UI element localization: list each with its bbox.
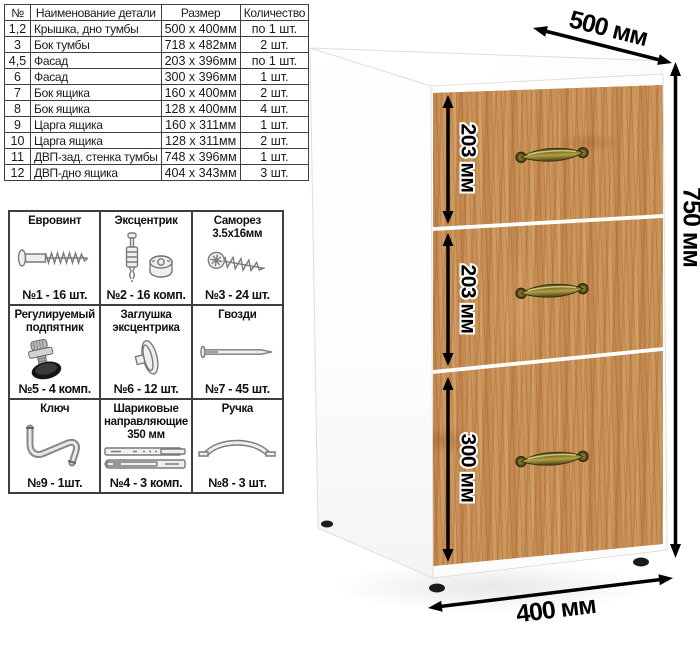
col-header-num: № (5, 5, 31, 21)
hardware-item-eccentric: Эксцентрик №2 - 16 комп. (100, 211, 191, 305)
cabinet-foot (633, 558, 649, 567)
cell: Фасад (31, 69, 162, 85)
cell: 10 (5, 133, 31, 149)
cell: 128 х 311мм (161, 133, 240, 149)
cell: 4 шт. (240, 101, 308, 117)
cell: 300 х 396мм (161, 69, 240, 85)
hardware-item-cap: Заглушка эксцентрика №6 - 12 шт. (100, 305, 191, 399)
hardware-title: Регулируемый подпятник (11, 309, 98, 335)
dimensions-overlay: 500 мм 750 мм 400 мм 203 мм (300, 0, 700, 648)
cell: по 1 шт. (240, 21, 308, 37)
table-row: 1,2 Крышка, дно тумбы 500 х 400мм по 1 ш… (5, 21, 309, 37)
dim-drawer3-arrow (443, 377, 454, 562)
cabinet-foot (429, 584, 445, 593)
cell: 4,5 (5, 53, 31, 69)
nail-icon (198, 322, 276, 382)
hardware-count: №9 - 1шт. (27, 476, 82, 490)
cell: 160 х 311мм (161, 117, 240, 133)
cell: Бок ящика (31, 101, 162, 117)
hardware-item-samorez: Саморез 3.5х16мм №3 - 24 шт. (192, 211, 283, 305)
dim-drawer2-arrow (443, 233, 454, 366)
table-row: 11 ДВП-зад. стенка тумбы 748 х 396мм 1 ш… (5, 149, 309, 165)
cell: 6 (5, 69, 31, 85)
cell: Крышка, дно тумбы (31, 21, 162, 37)
cell: 7 (5, 85, 31, 101)
dim-depth-label: 500 мм (566, 5, 650, 52)
col-header-size: Размер (161, 5, 240, 21)
table-row: 10 Царга ящика 128 х 311мм 2 шт. (5, 133, 309, 149)
hardware-count: №8 - 3 шт. (208, 476, 266, 490)
dim-drawer3-label: 300 мм (456, 434, 479, 503)
hardware-count: №6 - 12 шт. (113, 382, 178, 396)
cell: 2 шт. (240, 37, 308, 53)
hardware-title: Саморез 3.5х16мм (194, 215, 281, 241)
table-row: 8 Бок ящика 128 х 400мм 4 шт. (5, 101, 309, 117)
hardware-title: Ручка (222, 403, 253, 416)
cell: 2 шт. (240, 133, 308, 149)
parts-table: № Наименование детали Размер Количество … (4, 4, 309, 181)
hardware-item-foot: Регулируемый подпятник №5 - 4 комп. (9, 305, 100, 399)
hardware-count: №2 - 16 комп. (106, 288, 185, 302)
hex-key-icon (18, 416, 92, 476)
drawer-handle-icon (197, 416, 277, 476)
drawer-handle (516, 451, 589, 467)
cell: Фасад (31, 53, 162, 69)
col-header-name: Наименование детали (31, 5, 162, 21)
hardware-item-nails: Гвозди №7 - 45 шт. (192, 305, 283, 399)
assembly-sheet: № Наименование детали Размер Количество … (0, 0, 700, 648)
cell: Бок ящика (31, 85, 162, 101)
cell: 160 х 400мм (161, 85, 240, 101)
hardware-title: Ключ (40, 403, 69, 416)
eccentric-cam-icon (114, 228, 178, 288)
hardware-count: №1 - 16 шт. (22, 288, 87, 302)
hardware-title: Евровинт (28, 215, 81, 228)
cell: 3 шт. (240, 165, 308, 181)
dim-drawer2-label: 203 мм (456, 265, 479, 334)
hardware-item-slides: Шариковые направляющие 350 мм №4 - 3 ком… (100, 399, 191, 493)
cell: 1,2 (5, 21, 31, 37)
cell: 8 (5, 101, 31, 117)
cell: 12 (5, 165, 31, 181)
table-row: 6 Фасад 300 х 396мм 1 шт. (5, 69, 309, 85)
hardware-title: Шариковые направляющие 350 мм (102, 403, 189, 442)
cell: 3 (5, 37, 31, 53)
cell: 9 (5, 117, 31, 133)
cell: 748 х 396мм (161, 149, 240, 165)
drawer-handle (516, 147, 589, 163)
dim-height-label: 750 мм (677, 187, 700, 267)
cabinet-edges (310, 48, 667, 578)
cell: 500 х 400мм (161, 21, 240, 37)
cell: Царга ящика (31, 117, 162, 133)
cabinet-foot (321, 521, 333, 528)
cell: 718 х 482мм (161, 37, 240, 53)
hardware-grid: Евровинт №1 - 16 шт. Эксцентрик (8, 210, 284, 494)
hardware-count: №5 - 4 комп. (18, 382, 91, 396)
adjustable-foot-icon (26, 335, 84, 382)
hardware-item-eurovint: Евровинт №1 - 16 шт. (9, 211, 100, 305)
hardware-count: №4 - 3 комп. (110, 476, 183, 490)
dim-drawer1-arrow (443, 95, 454, 224)
cell: 1 шт. (240, 69, 308, 85)
cell: 1 шт. (240, 117, 308, 133)
cell: 404 х 343мм (161, 165, 240, 181)
table-row: 12 ДВП-дно ящика 404 х 343мм 3 шт. (5, 165, 309, 181)
cell: 1 шт. (240, 149, 308, 165)
hardware-title: Гвозди (218, 309, 256, 322)
hardware-item-handle: Ручка №8 - 3 шт. (192, 399, 283, 493)
table-row: 4,5 Фасад 203 х 396мм по 1 шт. (5, 53, 309, 69)
hardware-count: №7 - 45 шт. (205, 382, 270, 396)
hardware-title: Эксцентрик (114, 215, 177, 228)
hardware-count: №3 - 24 шт. (205, 288, 270, 302)
cam-cap-icon (127, 335, 165, 382)
dim-drawer1-label: 203 мм (456, 124, 479, 193)
hardware-item-key: Ключ №9 - 1шт. (9, 399, 100, 493)
cell: 203 х 396мм (161, 53, 240, 69)
cell: 2 шт. (240, 85, 308, 101)
cell: по 1 шт. (240, 53, 308, 69)
col-header-qty: Количество (240, 5, 308, 21)
cell: ДВП-зад. стенка тумбы (31, 149, 162, 165)
cell: Царга ящика (31, 133, 162, 149)
cell: 11 (5, 149, 31, 165)
table-header-row: № Наименование детали Размер Количество (5, 5, 309, 21)
table-row: 9 Царга ящика 160 х 311мм 1 шт. (5, 117, 309, 133)
ball-slides-icon (103, 442, 189, 476)
dim-height-arrow (670, 62, 681, 558)
cabinet-illustration: 500 мм 750 мм 400 мм 203 мм (300, 0, 700, 648)
table-row: 7 Бок ящика 160 х 400мм 2 шт. (5, 85, 309, 101)
table-row: 3 Бок тумбы 718 х 482мм 2 шт. (5, 37, 309, 53)
cell: 128 х 400мм (161, 101, 240, 117)
self-tapping-screw-icon (204, 241, 270, 288)
drawer-handle (516, 283, 589, 299)
hardware-title: Заглушка эксцентрика (102, 309, 189, 335)
cell: Бок тумбы (31, 37, 162, 53)
euro-screw-icon (17, 228, 93, 288)
cell: ДВП-дно ящика (31, 165, 162, 181)
